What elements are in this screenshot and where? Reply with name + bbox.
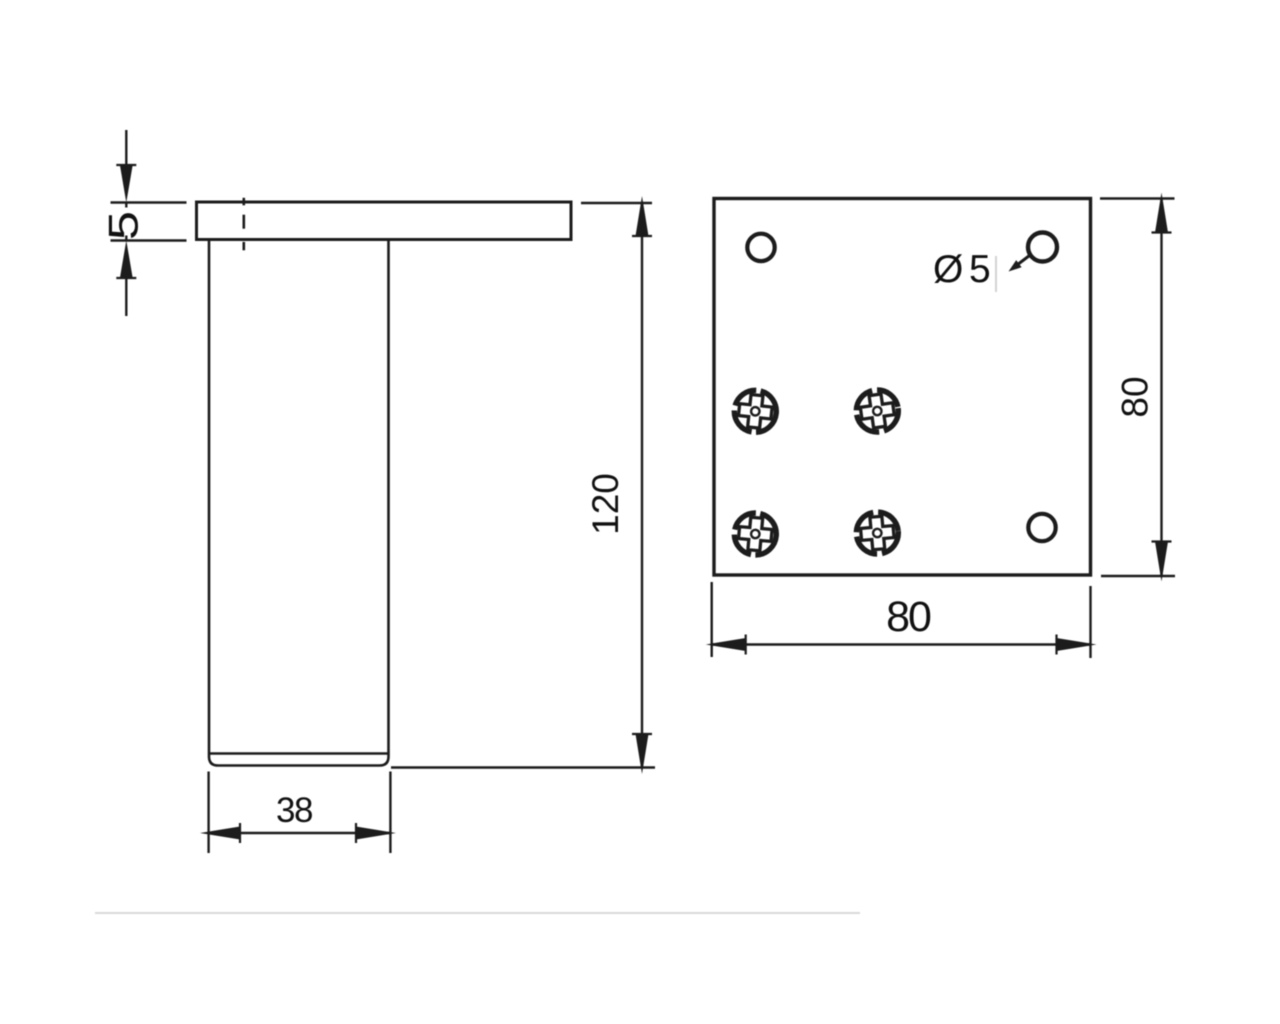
svg-text:80: 80 (886, 593, 931, 641)
svg-text:80: 80 (1114, 376, 1155, 417)
svg-text:5: 5 (100, 211, 147, 240)
svg-text:Ø: Ø (933, 248, 963, 291)
svg-text:38: 38 (276, 791, 312, 830)
svg-text:120: 120 (585, 473, 626, 535)
svg-text:5: 5 (969, 248, 991, 291)
